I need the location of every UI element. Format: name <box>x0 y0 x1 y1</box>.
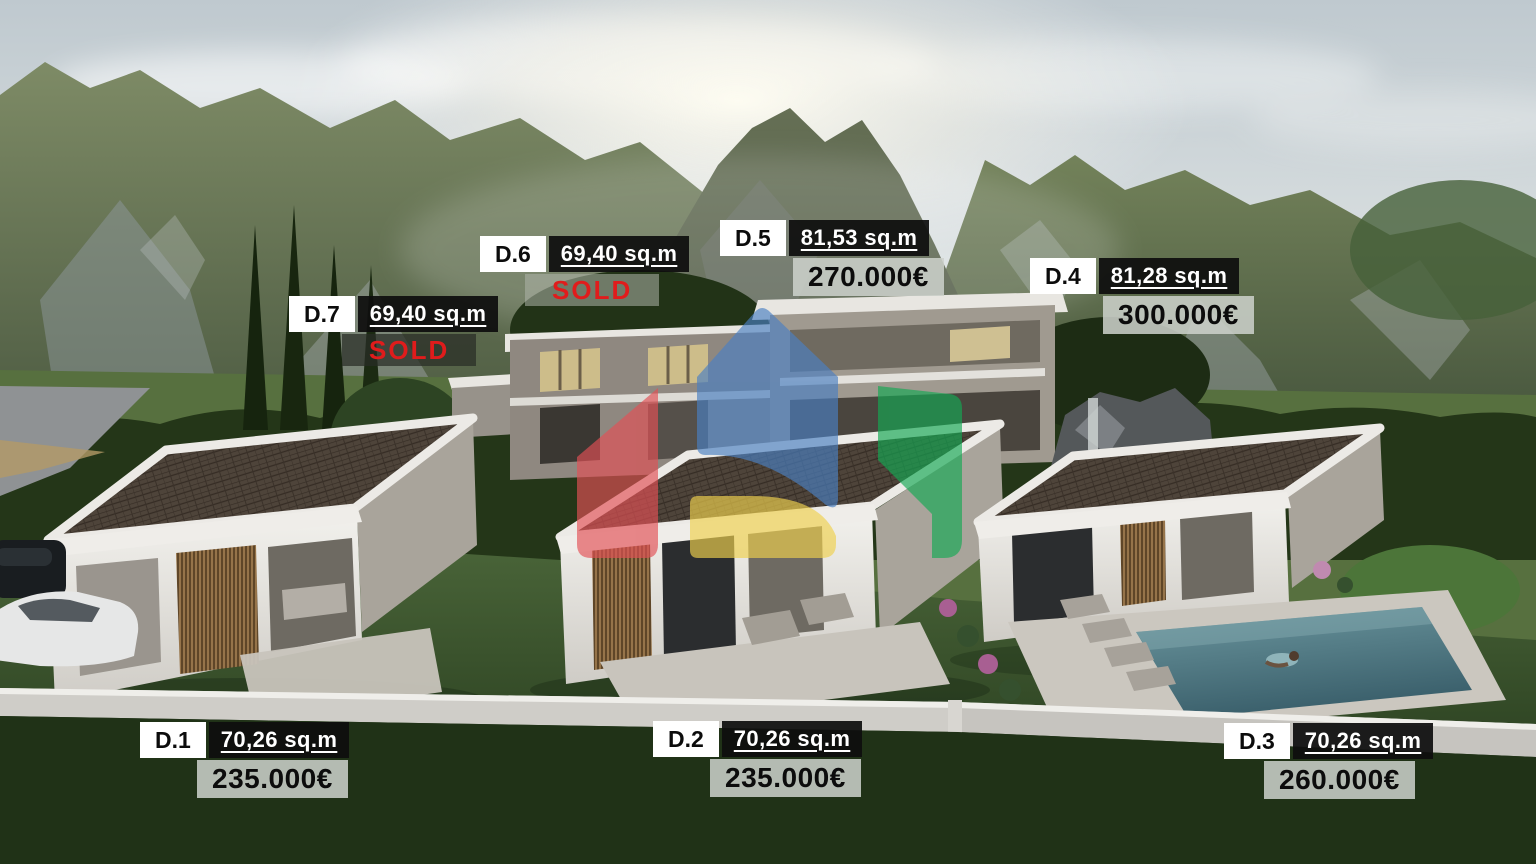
property-id-tag: D.4 <box>1030 258 1096 294</box>
property-id-tag: D.1 <box>140 722 206 758</box>
property-id-tag: D.3 <box>1224 723 1290 759</box>
property-label-d6: D.6 69,40 sq.m SOLD <box>480 236 689 306</box>
property-area-tag: 70,26 sq.m <box>209 722 350 758</box>
property-area-tag: 70,26 sq.m <box>722 721 863 757</box>
property-label-d4: D.4 81,28 sq.m 300.000€ <box>1030 258 1254 334</box>
property-area-tag: 69,40 sq.m <box>549 236 690 272</box>
property-id-tag: D.7 <box>289 296 355 332</box>
property-label-d1: D.1 70,26 sq.m 235.000€ <box>140 722 349 798</box>
development-render: D.7 69,40 sq.m SOLD D.6 69,40 sq.m SOLD … <box>0 0 1536 864</box>
property-label-d3: D.3 70,26 sq.m 260.000€ <box>1224 723 1433 799</box>
property-sold-tag: SOLD <box>525 274 659 306</box>
property-area-tag: 69,40 sq.m <box>358 296 499 332</box>
property-price-tag: 270.000€ <box>793 258 944 296</box>
property-sold-tag: SOLD <box>342 334 476 366</box>
property-area-tag: 81,53 sq.m <box>789 220 930 256</box>
property-label-d2: D.2 70,26 sq.m 235.000€ <box>653 721 862 797</box>
property-price-tag: 300.000€ <box>1103 296 1254 334</box>
property-price-tag: 235.000€ <box>710 759 861 797</box>
property-id-tag: D.5 <box>720 220 786 256</box>
property-area-tag: 81,28 sq.m <box>1099 258 1240 294</box>
property-id-tag: D.6 <box>480 236 546 272</box>
car-white <box>0 591 138 666</box>
property-price-tag: 235.000€ <box>197 760 348 798</box>
car-dark <box>0 540 66 598</box>
property-id-tag: D.2 <box>653 721 719 757</box>
property-price-tag: 260.000€ <box>1264 761 1415 799</box>
property-label-d7: D.7 69,40 sq.m SOLD <box>289 296 498 366</box>
property-area-tag: 70,26 sq.m <box>1293 723 1434 759</box>
property-label-d5: D.5 81,53 sq.m 270.000€ <box>720 220 944 296</box>
